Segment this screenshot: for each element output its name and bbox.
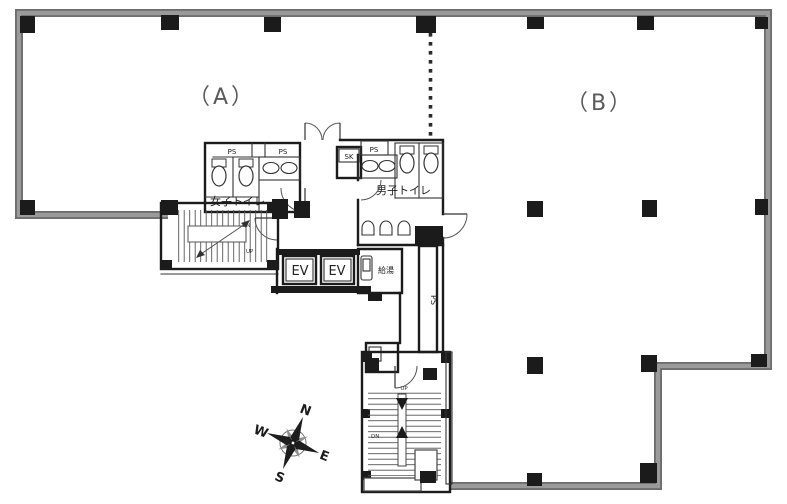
compass-east-label: E bbox=[317, 448, 331, 465]
toilet-fixture bbox=[400, 146, 414, 173]
zone-b-label: （B） bbox=[566, 91, 634, 116]
compass-rose: N E S W bbox=[238, 389, 344, 499]
womens-toilet-room: PS PS 女子トイレ bbox=[205, 143, 305, 212]
zone-a-label: （A） bbox=[188, 85, 256, 110]
floor-plan: （A） （B） PS PS 女子トイレ SK bbox=[0, 0, 787, 504]
toilet-fixture bbox=[424, 146, 438, 173]
womens-toilet-label: 女子トイレ bbox=[210, 194, 265, 208]
pipe-shaft-label: PS bbox=[429, 295, 438, 305]
toilet-fixture bbox=[239, 159, 253, 186]
pipe-shaft-label: PS bbox=[279, 148, 288, 156]
lower-stairs-up-label: UP bbox=[400, 386, 408, 392]
pipe-shaft-label: PS bbox=[370, 146, 379, 154]
sink-fixture bbox=[379, 161, 395, 172]
urinal-fixture bbox=[380, 221, 392, 235]
pipe-shaft-label: PS bbox=[228, 148, 237, 156]
compass-south-label: S bbox=[272, 469, 286, 486]
lower-stairs-dn-label: DN bbox=[371, 434, 379, 440]
mens-toilet-label: 男子トイレ bbox=[376, 184, 431, 197]
compass-west-label: W bbox=[251, 423, 270, 442]
upper-stairs-up-label: UP bbox=[246, 249, 254, 255]
urinal-fixture bbox=[398, 221, 410, 235]
sink-fixture bbox=[281, 163, 297, 174]
zone-b-door bbox=[443, 214, 467, 238]
floor-plan-drawing: （A） （B） PS PS 女子トイレ SK bbox=[0, 0, 787, 504]
upper-stairs-dn-label: DN bbox=[242, 223, 250, 229]
urinal-fixture bbox=[362, 221, 374, 235]
elevator-block: EV EV bbox=[271, 249, 371, 293]
hot-water-room: 給湯 bbox=[358, 249, 402, 301]
lobby-double-door bbox=[305, 123, 340, 140]
duct-block bbox=[294, 201, 310, 218]
elevator-label: EV bbox=[291, 264, 308, 279]
door-arc bbox=[361, 180, 381, 200]
elevator-label: EV bbox=[328, 264, 345, 279]
sk-label: SK bbox=[344, 153, 353, 161]
hot-water-label: 給湯 bbox=[378, 265, 394, 275]
upper-staircase: DN UP bbox=[161, 203, 278, 274]
compass-north-label: N bbox=[298, 402, 314, 420]
sink-fixture bbox=[263, 163, 279, 174]
toilet-fixture bbox=[212, 159, 226, 186]
duct-space bbox=[415, 226, 443, 246]
duct-block bbox=[272, 199, 288, 219]
sink-fixture bbox=[362, 161, 378, 172]
